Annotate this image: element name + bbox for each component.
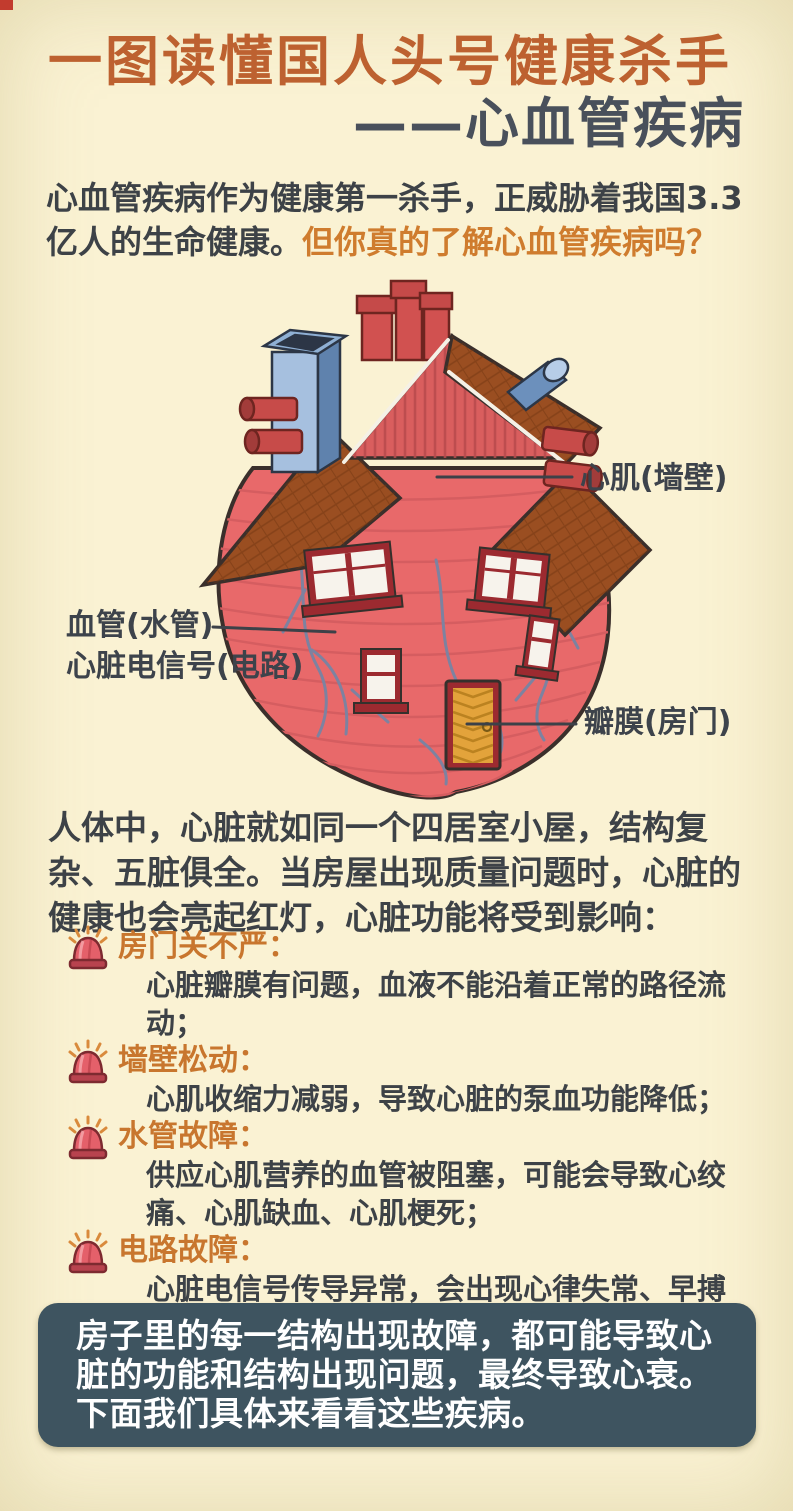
issue-title-row: 房门关不严：	[118, 928, 766, 966]
red-chimneys	[357, 281, 452, 360]
label-vessel: 血管(水管)	[66, 608, 213, 644]
issue-pipe: 水管故障： 供应心肌营养的血管被阻塞，可能会导致心绞痛、心肌缺血、心肌梗死；	[118, 1118, 766, 1232]
issue-title: 电路故障：	[118, 1233, 268, 1268]
siren-icon	[66, 1115, 110, 1161]
issue-desc: 供应心肌营养的血管被阻塞，可能会导致心绞痛、心肌缺血、心肌梗死；	[146, 1156, 752, 1232]
issue-title: 水管故障：	[118, 1119, 268, 1154]
siren-icon	[66, 1039, 110, 1085]
window-upper-left	[296, 541, 402, 617]
infographic-poster: 一图读懂国人头号健康杀手 ——心血管疾病 心血管疾病作为健康第一杀手，正威胁着我…	[0, 0, 793, 1511]
siren-icon	[66, 925, 110, 971]
issue-title: 墙壁松动：	[118, 1043, 268, 1078]
issue-wall: 墙壁松动： 心肌收缩力减弱，导致心脏的泵血功能降低；	[118, 1042, 766, 1118]
body-paragraph: 人体中，心脏就如同一个四居室小屋，结构复杂、五脏俱全。当房屋出现质量问题时，心脏…	[48, 806, 754, 941]
window-lower-center	[354, 649, 408, 713]
summary-text: 房子里的每一结构出现故障，都可能导致心脏的功能和结构出现问题，最终导致心衰。下面…	[76, 1316, 718, 1433]
label-myocardium: 心肌(墙壁)	[580, 461, 727, 497]
issue-title-row: 墙壁松动：	[118, 1042, 766, 1080]
issue-title: 房门关不严：	[118, 929, 298, 964]
issue-title-row: 水管故障：	[118, 1118, 766, 1156]
issue-title-row: 电路故障：	[118, 1232, 766, 1270]
label-electrical-signal: 心脏电信号(电路)	[66, 649, 303, 685]
summary-box: 房子里的每一结构出现故障，都可能导致心脏的功能和结构出现问题，最终导致心衰。下面…	[38, 1303, 756, 1447]
issue-door: 房门关不严： 心脏瓣膜有问题，血液不能沿着正常的路径流动；	[118, 928, 766, 1042]
heart-house-illustration	[0, 0, 793, 810]
issue-desc: 心脏瓣膜有问题，血液不能沿着正常的路径流动；	[146, 966, 752, 1042]
siren-icon	[66, 1229, 110, 1275]
issue-desc: 心肌收缩力减弱，导致心脏的泵血功能降低；	[146, 1080, 752, 1118]
window-upper-right	[466, 547, 556, 618]
issues-list: 房门关不严： 心脏瓣膜有问题，血液不能沿着正常的路径流动； 墙壁松动：	[118, 928, 766, 1346]
label-valve: 瓣膜(房门)	[584, 705, 731, 741]
